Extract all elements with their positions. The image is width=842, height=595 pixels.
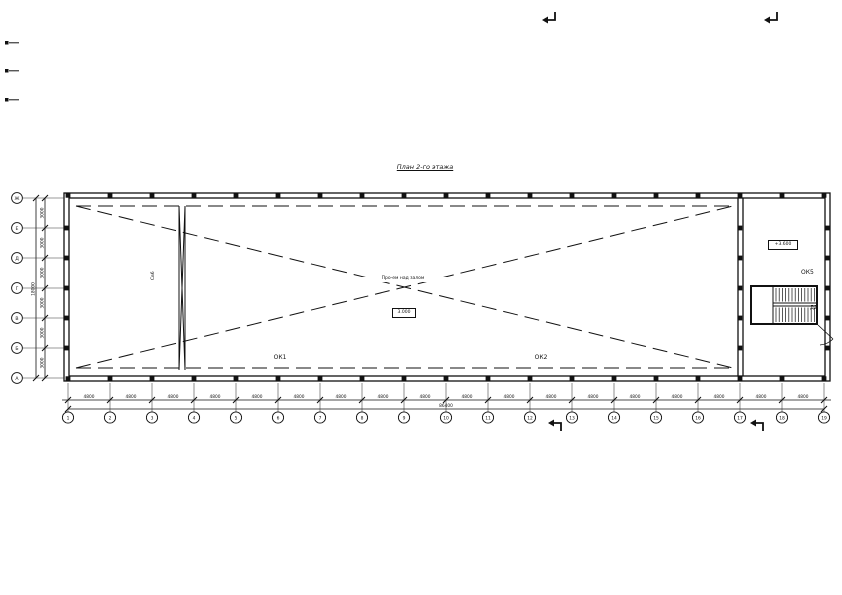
grid-bubble-col-label: 14 (611, 415, 617, 421)
column-mark (825, 286, 830, 291)
grid-bubble-col-label: 1 (67, 415, 70, 421)
column-mark (738, 316, 743, 321)
stair-level-tag: +3.600 (768, 240, 798, 250)
grid-bubble-col-label: 6 (277, 415, 280, 421)
column-mark (486, 193, 491, 197)
column-mark (738, 193, 743, 197)
column-mark (654, 376, 659, 380)
column-mark (738, 376, 743, 380)
grid-bubble-col-label: 11 (485, 415, 491, 421)
dim-span-label: 4800 (756, 394, 767, 400)
column-mark (234, 193, 239, 197)
column-mark (66, 193, 71, 197)
column-mark (528, 376, 533, 380)
dim-span-label: 4800 (252, 394, 263, 400)
grid-bubble-col-label: 15 (653, 415, 659, 421)
column-mark (825, 256, 830, 261)
dim-span-label: 4800 (546, 394, 557, 400)
grid-bubble-col-label: 12 (527, 415, 533, 421)
column-mark (825, 316, 830, 321)
column-mark (402, 193, 407, 197)
hall-void-dashed-lines (76, 206, 733, 368)
dim-total-label: 18000 (31, 282, 37, 296)
column-mark (192, 376, 197, 380)
grid-bubble-col-label: 17 (737, 415, 743, 421)
column-mark (276, 193, 281, 197)
column-mark (570, 376, 575, 380)
grid-bubble-col-label: 16 (695, 415, 701, 421)
grid-bubble-col-label: 8 (361, 415, 364, 421)
left-edge-marks (5, 41, 19, 102)
column-mark (276, 376, 281, 380)
grid-bubble-col-label: 13 (569, 415, 575, 421)
staircase (751, 286, 817, 324)
dim-span-label: 4800 (126, 394, 137, 400)
column-mark (738, 346, 743, 351)
column-mark (402, 376, 407, 380)
grid-bubble-col-label: 19 (821, 415, 827, 421)
column-mark (696, 193, 701, 197)
dim-span-label: 4800 (630, 394, 641, 400)
dim-span-label: 4800 (504, 394, 515, 400)
dim-span-label: 4800 (588, 394, 599, 400)
drawing-canvas: 1480024800348004480054800648007480084800… (0, 0, 842, 595)
grid-bubble-row-label: Б (15, 346, 18, 352)
dim-total-label: 86400 (439, 403, 453, 409)
grid-bubble-col-label: 7 (319, 415, 322, 421)
column-mark (654, 193, 659, 197)
dim-span-label: 3000 (40, 297, 46, 308)
dim-span-label: 4800 (168, 394, 179, 400)
column-mark (612, 193, 617, 197)
grid-bubble-col-label: 18 (779, 415, 785, 421)
column-mark (64, 316, 69, 321)
column-mark (192, 193, 197, 197)
grid-bubble-col-label: 10 (443, 415, 449, 421)
grid-bubble-col-label: 5 (235, 415, 238, 421)
vertical-brace (179, 206, 185, 370)
column-mark (64, 346, 69, 351)
window-mark-ok2: ОК2 (527, 355, 555, 361)
grid-bubble-row-label: В (15, 316, 18, 322)
dim-span-label: 3000 (40, 327, 46, 338)
window-mark-ok1: ОК1 (266, 355, 294, 361)
grid-bubble-col-label: 4 (193, 415, 196, 421)
grid-bubble-row-label: Ж (15, 196, 20, 202)
dim-span-label: 3000 (40, 357, 46, 368)
grid-bubble-row-label: Е (16, 226, 19, 232)
floor-plan-linework: 1480024800348004480054800648007480084800… (0, 0, 842, 595)
dim-span-label: 4800 (210, 394, 221, 400)
column-mark (822, 376, 827, 380)
column-mark (318, 193, 323, 197)
dim-span-label: 4800 (462, 394, 473, 400)
brace-mark: Св6 (152, 271, 157, 280)
hall-void-note: Про-ем над залом (353, 277, 453, 282)
column-mark (570, 193, 575, 197)
column-mark (318, 376, 323, 380)
column-mark (360, 376, 365, 380)
column-mark (612, 376, 617, 380)
drawing-title: План 2-го этажа (377, 164, 473, 171)
column-mark (444, 193, 449, 197)
column-mark (444, 376, 449, 380)
column-mark (360, 193, 365, 197)
dim-span-label: 4800 (294, 394, 305, 400)
hall-level-tag: 3.000 (392, 308, 416, 318)
column-mark (486, 376, 491, 380)
grid-bubble-row-label: Д (15, 256, 19, 262)
grid-bubble-col-label: 9 (403, 415, 406, 421)
column-mark (64, 226, 69, 231)
dim-span-label: 4800 (672, 394, 683, 400)
window-mark-ok5: ОК5 (801, 270, 825, 276)
column-mark (696, 376, 701, 380)
dim-span-label: 4800 (378, 394, 389, 400)
column-mark (738, 226, 743, 231)
column-mark (150, 376, 155, 380)
column-mark (66, 376, 71, 380)
column-mark (822, 193, 827, 197)
dim-span-label: 4800 (84, 394, 95, 400)
column-mark (64, 256, 69, 261)
column-mark (108, 376, 113, 380)
dim-span-label: 3000 (40, 267, 46, 278)
dim-span-label: 3000 (40, 237, 46, 248)
column-mark (108, 193, 113, 197)
column-mark (528, 193, 533, 197)
dim-span-label: 4800 (798, 394, 809, 400)
column-mark (780, 193, 785, 197)
column-mark (738, 286, 743, 291)
dim-span-label: 3000 (40, 207, 46, 218)
grid-bubble-col-label: 2 (109, 415, 112, 421)
grid-bubble-row-label: Г (16, 286, 19, 292)
column-mark (64, 286, 69, 291)
grid-bubble-col-label: 3 (151, 415, 154, 421)
column-mark (825, 226, 830, 231)
dim-span-label: 4800 (420, 394, 431, 400)
column-mark (234, 376, 239, 380)
column-mark (780, 376, 785, 380)
dim-span-label: 4800 (714, 394, 725, 400)
door-mark-d2: Д2 (810, 306, 817, 311)
column-mark (150, 193, 155, 197)
column-mark (738, 256, 743, 261)
dim-span-label: 4800 (336, 394, 347, 400)
column-mark (825, 346, 830, 351)
